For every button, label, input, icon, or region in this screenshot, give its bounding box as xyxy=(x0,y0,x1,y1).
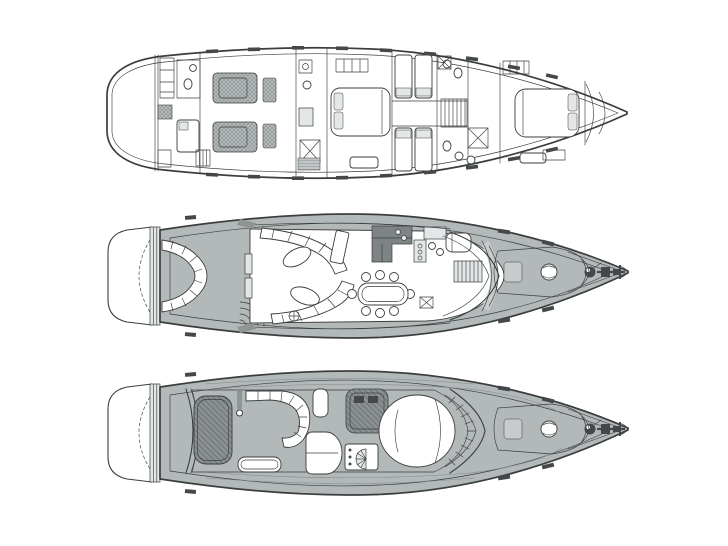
washer xyxy=(158,105,172,119)
toilet xyxy=(443,141,451,151)
chair xyxy=(376,271,385,280)
sink xyxy=(429,243,436,250)
sink xyxy=(455,152,463,160)
forward-sunlounger xyxy=(379,395,455,467)
generator xyxy=(263,124,276,148)
chair xyxy=(362,307,371,316)
generator xyxy=(263,78,276,102)
chair xyxy=(376,309,385,318)
sink xyxy=(443,60,451,68)
yacht-deck-plans-image xyxy=(0,0,728,546)
deck-plans-svg xyxy=(0,0,728,546)
companionway-stairs xyxy=(454,261,482,282)
drinks-table xyxy=(238,457,281,472)
sink xyxy=(467,156,475,164)
chair xyxy=(390,273,399,282)
engine-port xyxy=(213,73,257,103)
helm-seats xyxy=(306,432,342,474)
chair xyxy=(362,273,371,282)
wet-bar-grill xyxy=(345,444,378,470)
sink xyxy=(303,81,311,89)
toilet xyxy=(184,79,192,89)
tiled-floor xyxy=(298,158,320,170)
radar-mast xyxy=(237,391,243,416)
main-deck-plan xyxy=(108,214,628,338)
flybridge-plan xyxy=(108,371,628,495)
lower-deck-plan xyxy=(107,46,627,180)
toilet xyxy=(454,68,462,78)
chair xyxy=(348,290,357,299)
bench xyxy=(350,157,378,168)
aft-sunpad xyxy=(194,396,232,464)
settee-arm xyxy=(313,389,328,417)
chair xyxy=(390,307,399,316)
seat xyxy=(520,153,546,163)
sink xyxy=(437,249,444,256)
sink xyxy=(190,65,197,72)
engine-starboard xyxy=(213,122,257,152)
